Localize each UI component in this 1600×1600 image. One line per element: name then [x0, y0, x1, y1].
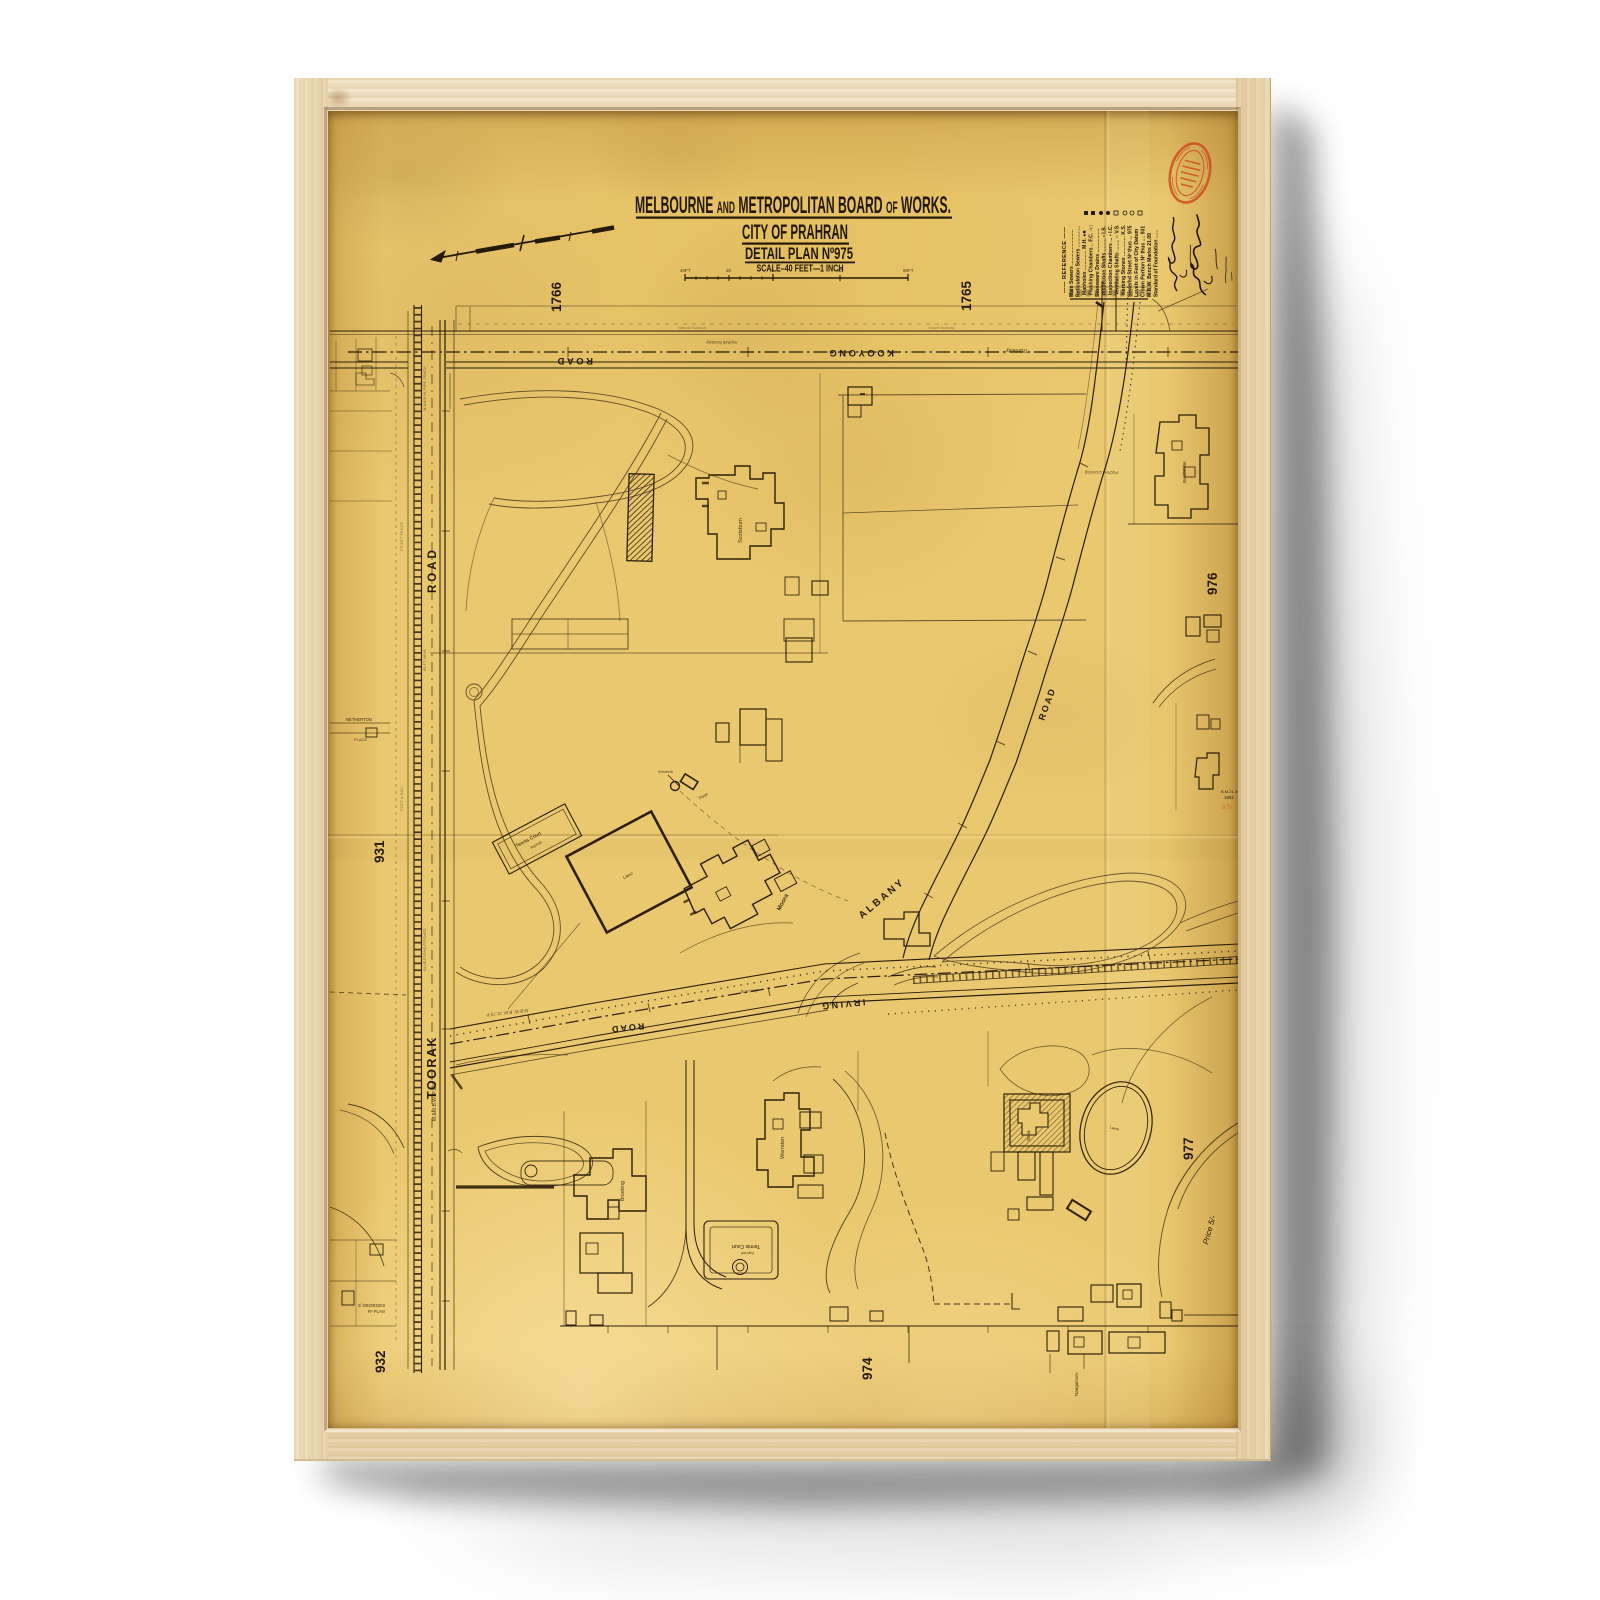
svg-text:Lawn: Lawn: [622, 870, 634, 880]
svg-text:ROAD: ROAD: [609, 1021, 644, 1035]
svg-text:932: 932: [373, 1350, 388, 1373]
svg-text:Brooking: Brooking: [620, 1181, 626, 1201]
svg-text:Standard of Foundation ......: Standard of Foundation ......: [1154, 229, 1160, 297]
svg-text:SCALE–40 FEET—1 INCH: SCALE–40 FEET—1 INCH: [757, 263, 844, 275]
svg-text:80FT: 80FT: [903, 268, 914, 273]
svg-text:ROAD: ROAD: [427, 547, 439, 593]
svg-text:Gravel footway: Gravel footway: [928, 325, 955, 330]
svg-text:Inspection Chambers ... ▪ I.C.: Inspection Chambers ... ▪ I.C.: [1108, 224, 1114, 295]
svg-text:931: 931: [372, 840, 387, 863]
svg-text:Bundalohn: Bundalohn: [1182, 461, 1187, 483]
svg-text:MELBOURNE AND METROPOLITAN BOA: MELBOURNE AND METROPOLITAN BOARD OF WORK…: [635, 192, 951, 219]
svg-text:976: 976: [1205, 572, 1220, 595]
svg-text:975: 975: [1222, 805, 1233, 811]
svg-text:Manholes .............. M.H. ●: Manholes .............. M.H. ●■: [1082, 231, 1088, 295]
svg-text:974: 974: [860, 1357, 875, 1380]
svg-text:M.&M.B.W. P.266: M.&M.B.W. P.266: [432, 1082, 438, 1121]
svg-text:1765: 1765: [959, 280, 974, 311]
svg-text:ALBANY: ALBANY: [857, 876, 907, 921]
svg-text:Crown Portion Nº thus .... 931: Crown Portion Nº thus .... 931: [1141, 226, 1147, 297]
svg-text:40: 40: [837, 268, 843, 273]
svg-text:PLACE: PLACE: [354, 737, 367, 742]
svg-text:Price 5/-: Price 5/-: [1201, 1214, 1217, 1245]
svg-text:Asphalt footway: Asphalt footway: [705, 340, 739, 345]
svg-text:Wernden: Wernden: [780, 1137, 786, 1159]
svg-text:Kerbing Stones ..............: Kerbing Stones .............. K.S.: [1121, 224, 1127, 295]
svg-text:SʹGEORGES: SʹGEORGES: [358, 1303, 385, 1308]
svg-text:20: 20: [726, 268, 732, 273]
svg-text:Tennis Court: Tennis Court: [731, 1243, 760, 1249]
svg-text:Natural Surface: Natural Surface: [678, 325, 707, 330]
svg-text:60 FT WIDE: 60 FT WIDE: [422, 649, 427, 671]
svg-text:977: 977: [1181, 1137, 1196, 1160]
svg-text:Windmill: Windmill: [658, 769, 673, 774]
svg-text:Ventilating Shafts ........ ○: Ventilating Shafts ........ ○ V.S.: [1115, 224, 1121, 295]
svg-text:POST & RAIL: POST & RAIL: [399, 786, 404, 811]
svg-text:Nangatooro: Nangatooro: [1074, 1372, 1079, 1396]
svg-text:—— REFERENCE ——: —— REFERENCE ——: [1062, 227, 1068, 293]
svg-text:Pitched crossing: Pitched crossing: [1084, 470, 1118, 475]
svg-text:Tramway: Tramway: [1005, 347, 1028, 353]
svg-text:Sewered Street Nº thus ... 975: Sewered Street Nº thus ... 975: [1128, 225, 1134, 297]
svg-text:40FT: 40FT: [680, 268, 691, 273]
svg-text:Moora: Moora: [776, 893, 790, 912]
svg-text:Stage: Stage: [697, 791, 709, 801]
svg-text:M.&M.B.W. PIPE TRACK: M.&M.B.W. PIPE TRACK: [422, 366, 427, 411]
svg-text:Scotsburn: Scotsburn: [738, 518, 744, 543]
svg-text:Asphalt: Asphalt: [740, 1251, 754, 1255]
svg-text:Flushing Chambers .. F.C. ○□: Flushing Chambers .. F.C. ○□: [1089, 225, 1095, 295]
svg-text:1892: 1892: [1224, 795, 1235, 800]
svg-text:KOOYONG: KOOYONG: [827, 347, 894, 358]
svg-text:Crossing: Crossing: [740, 988, 759, 995]
svg-text:B.M.21.09: B.M.21.09: [1221, 789, 1238, 794]
svg-text:DETAIL PLAN Nº975: DETAIL PLAN Nº975: [745, 245, 853, 263]
svg-text:BLUESTONE PITCHED: BLUESTONE PITCHED: [422, 928, 427, 971]
svg-text:1766: 1766: [549, 281, 564, 312]
svg-text:ROAD: ROAD: [555, 355, 593, 366]
svg-text:NETHERTON: NETHERTON: [346, 717, 372, 722]
svg-text:IRVING: IRVING: [819, 997, 866, 1012]
svg-text:Sona: Sona: [1026, 1130, 1031, 1141]
svg-text:PICKET FENCE: PICKET FENCE: [399, 522, 404, 551]
svg-text:Reticulation Sewers ..........: Reticulation Sewers ...............: [1076, 225, 1082, 297]
svg-text:CITY OF PRAHRAN: CITY OF PRAHRAN: [742, 221, 848, 244]
svg-text:Rº PLAN: Rº PLAN: [368, 1309, 385, 1314]
